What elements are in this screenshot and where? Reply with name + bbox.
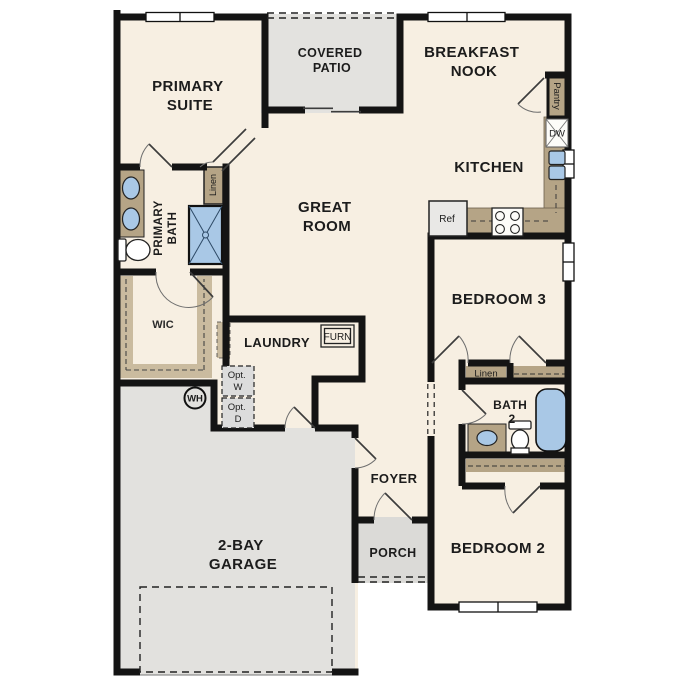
sink-icon: [477, 431, 497, 446]
window-bedroom3: [563, 243, 574, 281]
room-label-foyer: FOYER: [371, 471, 418, 486]
room-label-wic: WIC: [152, 319, 173, 331]
floorplan-page: PRIMARY SUITE COVERED PATIO BREAKFAST NO…: [0, 0, 687, 687]
room-label-kitchen: KITCHEN: [454, 159, 523, 176]
room-label-porch: PORCH: [369, 546, 416, 560]
linen-primary-label: Linen: [208, 174, 218, 196]
room-label-laundry: LAUNDRY: [244, 335, 310, 350]
linen-hall-label: Linen: [474, 369, 497, 380]
svg-text:PRIMARY: PRIMARY: [153, 200, 165, 255]
window-primary-suite: [146, 13, 214, 22]
bed3-closet-shelf: [512, 366, 568, 379]
sink-icon: [123, 177, 140, 199]
window-bedroom2: [459, 602, 537, 612]
svg-text:BATH: BATH: [167, 212, 179, 245]
water-heater-label: WH: [187, 394, 203, 405]
pantry-label: Pantry: [551, 82, 562, 110]
dw-label: DW: [549, 129, 565, 140]
room-label-bedroom3: BEDROOM 3: [452, 291, 546, 308]
ref-label: Ref: [439, 214, 455, 225]
stove-icon: [492, 208, 523, 236]
shower-fixture: [189, 206, 222, 264]
sink-icon: [123, 208, 140, 230]
toilet-icon: [118, 239, 150, 261]
room-label-bedroom2: BEDROOM 2: [451, 540, 545, 557]
floorplan-svg: PRIMARY SUITE COVERED PATIO BREAKFAST NO…: [0, 0, 687, 687]
furnace-label: FURN: [324, 332, 352, 343]
tub-fixture: [536, 389, 566, 451]
window-breakfast-nook: [428, 13, 505, 22]
